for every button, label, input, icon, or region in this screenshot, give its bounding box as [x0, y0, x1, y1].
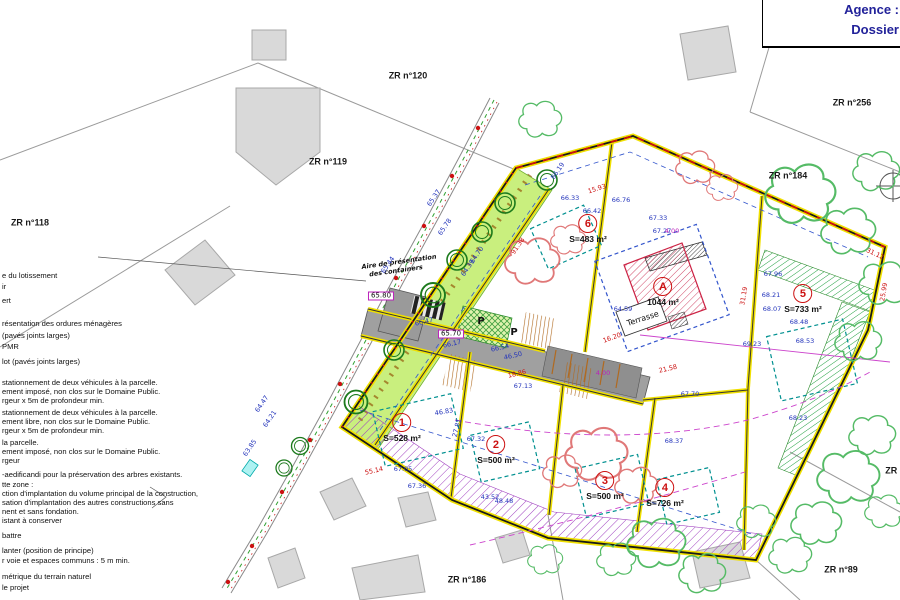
lot-marker: 5 S=733 m² [784, 284, 822, 314]
legend-line: istant à conserver [2, 517, 62, 525]
lot-area-label: S=483 m² [569, 234, 607, 244]
zr-parcel-label: ZR n°186 [448, 576, 487, 585]
measurement-label: 68.23 [789, 415, 808, 422]
lot-number-badge: A [653, 277, 672, 296]
lot-marker: 3 S=500 m² [586, 471, 624, 501]
agence-label: Agence : [763, 0, 899, 20]
zr-parcel-label: ZR n°184 [769, 172, 808, 181]
legend-line: -aedificandi pour la préservation des ar… [2, 471, 182, 479]
measurement-label: 4.00 [665, 228, 679, 235]
lot-marker: 6 S=483 m² [569, 214, 607, 244]
legend-line: ction d'implantation du volume principal… [2, 490, 198, 498]
measurement-label: 68.07 [763, 306, 782, 313]
legend-line: ement imposé, non clos sur le Domaine Pu… [2, 448, 160, 456]
lot-area-label: S=500 m² [586, 491, 624, 501]
measurement-label: 67.13 [514, 383, 533, 390]
measurement-label: 68.37 [665, 438, 684, 445]
legend-line: lanter (position de principe) [2, 547, 94, 555]
legend-line: sation d'implantation des autres constru… [2, 499, 174, 507]
legend-line: battre [2, 532, 21, 540]
legend-line: métrique du terrain naturel [2, 573, 91, 581]
legend-line: nent et sans fondation. [2, 508, 79, 516]
zr-parcel-label: ZR n°256 [833, 99, 872, 108]
legend-line: rgeur x 5m de profondeur min. [2, 397, 104, 405]
legend-line: lot (pavés joints larges) [2, 358, 80, 366]
zr-parcel-label: ZR n°120 [389, 72, 428, 81]
legend-line: (pavés joints larges) [2, 332, 70, 340]
measurement-label: 67.70 [681, 391, 700, 398]
legend-line: stationnement de deux véhicules à la par… [2, 379, 158, 387]
lot-number-badge: 3 [595, 471, 614, 490]
lot-area-label: 1044 m² [647, 297, 679, 307]
legend-line: r voie et espaces communs : 5 m min. [2, 557, 130, 565]
lot-marker: 1 S=528 m² [383, 413, 421, 443]
lot-marker: 2 S=500 m² [477, 435, 515, 465]
legend-line: la parcelle. [2, 439, 39, 447]
survey-marker-icon [876, 170, 900, 202]
measurement-label: 64.59 [614, 306, 633, 313]
lot-area-label: S=733 m² [784, 304, 822, 314]
measurement-label: 68.48 [790, 319, 809, 326]
legend-line: rgeur [2, 457, 20, 465]
zr-parcel-label: ZR n°89 [824, 566, 858, 575]
plan-label: 65.80 [368, 292, 394, 301]
zr-parcel-label: ZR n° [885, 467, 900, 476]
lot-marker: A 1044 m² [647, 277, 679, 307]
measurement-label: 48.48 [495, 498, 514, 505]
legend-line: PMR [2, 343, 19, 351]
measurement-label: 68.53 [796, 338, 815, 345]
lot-number-badge: 2 [486, 435, 505, 454]
legend-line: stationnement de deux véhicules à la par… [2, 409, 158, 417]
title-block: Agence : Dossier [762, 0, 900, 48]
plan-label: P [477, 317, 484, 327]
legend-line: rgeur x 5m de profondeur min. [2, 427, 104, 435]
measurement-label: 68.21 [762, 292, 781, 299]
measurement-label: 67.33 [649, 215, 668, 222]
legend-line: tte zone : [2, 481, 33, 489]
zr-parcel-label: ZR n°118 [11, 219, 49, 228]
site-plan-drawing [0, 0, 900, 600]
lot-number-badge: 5 [793, 284, 812, 303]
legend-line: ert [2, 297, 11, 305]
measurement-label: 67.36 [408, 483, 427, 490]
lot-area-label: S=726 m² [646, 498, 684, 508]
dossier-label: Dossier [763, 20, 899, 40]
legend-line: e du lotissement [2, 272, 57, 280]
legend-line: ement imposé, non clos sur le Domaine Pu… [2, 388, 160, 396]
lot-number-badge: 4 [655, 478, 674, 497]
plan-label: P [510, 328, 517, 338]
measurement-label: 67.05 [394, 466, 413, 473]
measurement-label: 66.76 [612, 197, 631, 204]
legend-line: ement libre, non clos sur le Domaine Pub… [2, 418, 150, 426]
legend-line: le projet [2, 584, 29, 592]
measurement-label: 66.33 [561, 195, 580, 202]
hedge-hatch-1 [519, 312, 556, 349]
measurement-label: 69.23 [743, 341, 762, 348]
zr-parcel-label: ZR n°119 [309, 158, 347, 167]
legend-line: résentation des ordures ménagères [2, 320, 122, 328]
legend-line: ir [2, 283, 6, 291]
measurement-label: 4.00 [596, 370, 610, 377]
measurement-label: 67.96 [764, 271, 783, 278]
lot-area-label: S=500 m² [477, 455, 515, 465]
lot-number-badge: 1 [392, 413, 411, 432]
lot-area-label: S=528 m² [383, 433, 421, 443]
site-plan-page: Agence : Dossier ZR n°120ZR n°119ZR n°11… [0, 0, 900, 600]
lot-number-badge: 6 [578, 214, 597, 233]
lot-marker: 4 S=726 m² [646, 478, 684, 508]
